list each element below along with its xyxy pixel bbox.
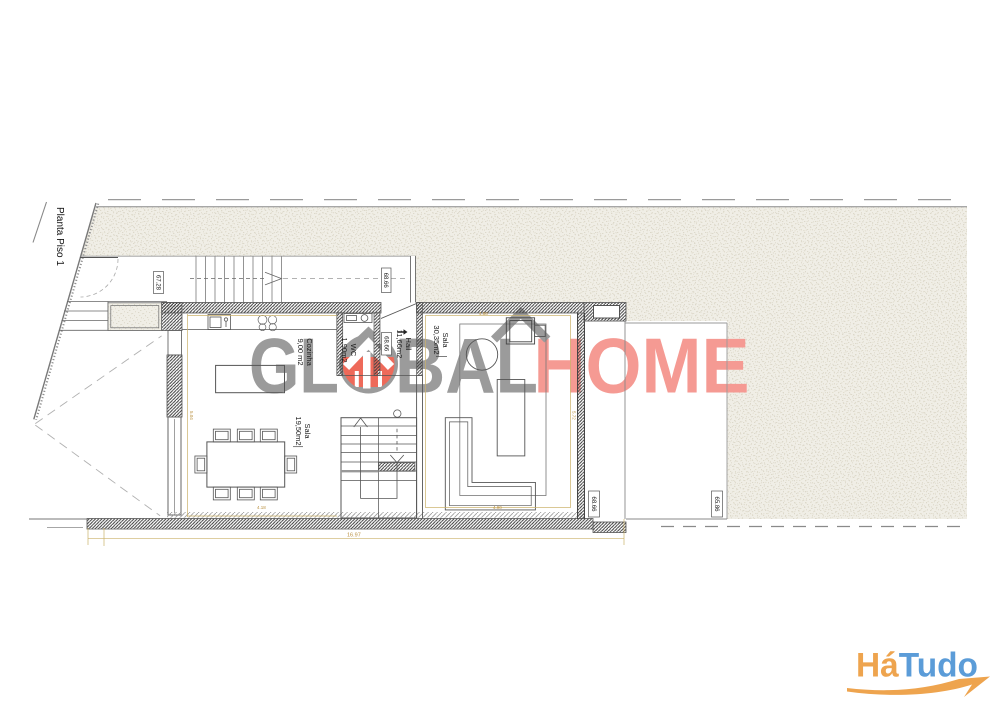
svg-text:5.72: 5.72 (572, 411, 577, 420)
svg-text:16.97: 16.97 (347, 533, 361, 539)
svg-text:68.66: 68.66 (382, 273, 388, 289)
svg-text:4.18: 4.18 (257, 505, 266, 510)
svg-text:67.28: 67.28 (155, 275, 161, 291)
svg-text:4.88: 4.88 (479, 311, 488, 316)
svg-text:1,90m2: 1,90m2 (340, 337, 349, 362)
svg-text:Hall: Hall (404, 338, 413, 351)
svg-text:68.66: 68.66 (383, 336, 389, 352)
svg-text:Sala: Sala (441, 332, 450, 348)
svg-text:11,66m2: 11,66m2 (395, 330, 404, 359)
svg-text:WC: WC (349, 344, 358, 357)
svg-text:4.90: 4.90 (493, 505, 502, 510)
svg-text:Sala: Sala (303, 423, 312, 439)
svg-text:Planta Piso 1: Planta Piso 1 (54, 207, 65, 266)
svg-text:9,00 m2: 9,00 m2 (296, 338, 305, 365)
svg-text:HOME: HOME (534, 322, 750, 410)
svg-text:5.04: 5.04 (189, 411, 194, 420)
svg-text:HáTudo: HáTudo (856, 647, 978, 685)
svg-text:65.86: 65.86 (713, 496, 719, 512)
svg-text:Cozinha: Cozinha (305, 338, 314, 366)
svg-text:19,50m2: 19,50m2 (294, 416, 303, 445)
svg-text:30,35m2: 30,35m2 (432, 325, 441, 354)
svg-text:68.66: 68.66 (590, 496, 596, 512)
